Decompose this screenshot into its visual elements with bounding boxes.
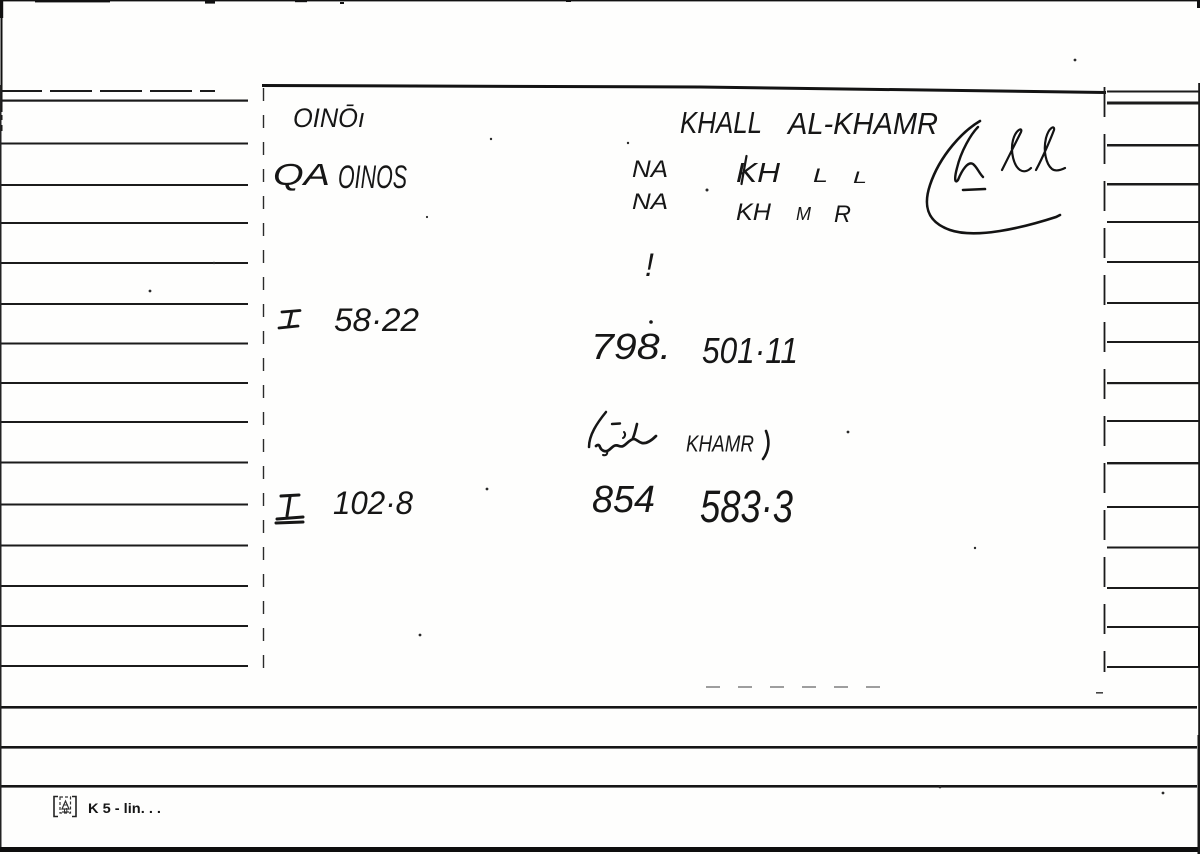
svg-text:NA: NA [632,156,668,183]
svg-text:AL-KHAMR: AL-KHAMR [786,106,938,141]
svg-text:583·3: 583·3 [700,481,793,532]
svg-text:798.: 798. [591,326,671,367]
svg-text:KHAMR: KHAMR [686,431,754,457]
svg-text:L: L [853,168,867,187]
svg-text:OINOS: OINOS [338,159,407,195]
svg-text:M: M [796,204,811,224]
svg-text:KHALL: KHALL [680,105,762,140]
svg-text:!: ! [645,247,654,283]
svg-text:QA: QA [273,157,330,192]
svg-text:NA: NA [632,189,668,214]
svg-text:OINŌı: OINŌı [293,103,365,133]
svg-text:K 5 - lin. . .: K 5 - lin. . . [88,801,161,816]
svg-text:58·22: 58·22 [334,302,419,338]
svg-text:R: R [834,201,851,228]
svg-text:KH: KH [736,199,772,226]
svg-text:501·11: 501·11 [702,330,798,371]
svg-text:854: 854 [592,479,655,521]
svg-text:102·8: 102·8 [333,485,413,521]
svg-text:L: L [813,166,828,187]
